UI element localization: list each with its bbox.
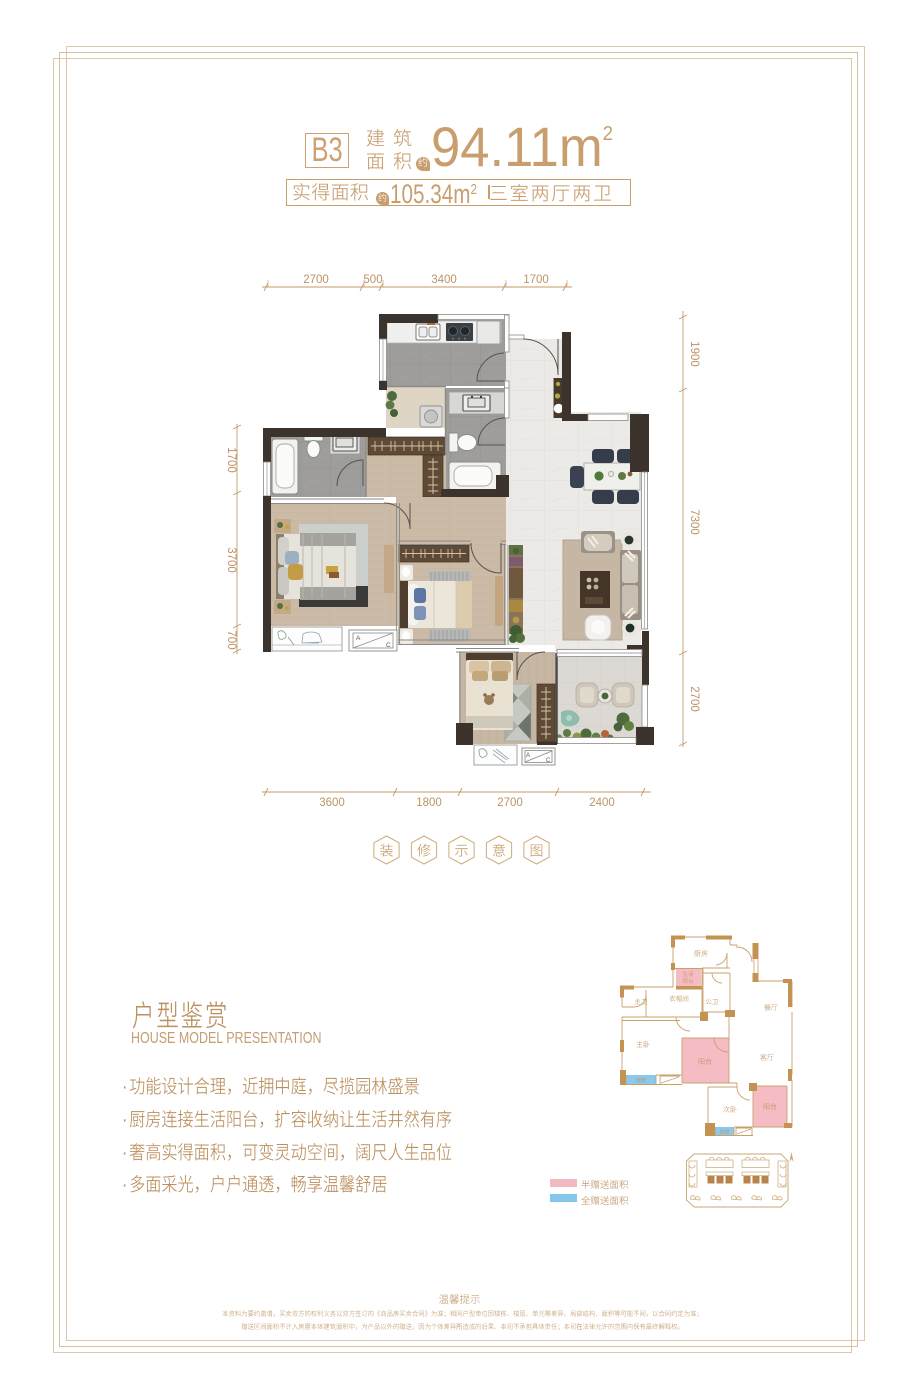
svg-text:500: 500 <box>363 274 382 286</box>
svg-text:装: 装 <box>380 843 394 859</box>
svg-text:7300: 7300 <box>688 509 700 535</box>
svg-text:阳台: 阳台 <box>682 978 694 985</box>
svg-text:衣帽间: 衣帽间 <box>669 995 689 1003</box>
svg-text:图: 图 <box>530 843 544 859</box>
svg-text:1800: 1800 <box>416 797 442 809</box>
svg-text:1900: 1900 <box>688 341 700 367</box>
svg-text:3400: 3400 <box>431 274 457 286</box>
svg-text:A: A <box>526 753 530 759</box>
svg-text:阳台: 阳台 <box>698 1058 712 1066</box>
svg-text:厨房: 厨房 <box>694 950 708 958</box>
svg-text:生活: 生活 <box>682 971 694 978</box>
svg-text:2700: 2700 <box>688 686 700 712</box>
svg-text:2700: 2700 <box>497 797 523 809</box>
svg-text:飘窗: 飘窗 <box>636 1077 646 1084</box>
svg-text:主卫: 主卫 <box>634 998 648 1006</box>
svg-text:3700: 3700 <box>225 547 237 573</box>
svg-text:示: 示 <box>455 843 469 859</box>
svg-text:3600: 3600 <box>319 797 345 809</box>
svg-text:餐厅: 餐厅 <box>764 1004 778 1012</box>
svg-text:2700: 2700 <box>303 274 329 286</box>
svg-text:A: A <box>356 635 361 642</box>
svg-text:修: 修 <box>417 843 431 859</box>
svg-text:1700: 1700 <box>225 447 237 473</box>
svg-text:公卫: 公卫 <box>705 998 719 1006</box>
svg-text:次卧: 次卧 <box>723 1106 737 1114</box>
svg-text:C: C <box>386 642 391 649</box>
svg-text:2400: 2400 <box>589 797 615 809</box>
svg-text:1700: 1700 <box>523 274 549 286</box>
svg-text:客厅: 客厅 <box>760 1054 774 1062</box>
svg-text:主卧: 主卧 <box>636 1041 650 1049</box>
svg-text:阳台: 阳台 <box>763 1103 777 1111</box>
svg-text:C: C <box>546 758 551 764</box>
svg-text:意: 意 <box>492 843 506 859</box>
svg-text:飘窗: 飘窗 <box>720 1129 730 1136</box>
svg-text:700: 700 <box>225 630 237 649</box>
